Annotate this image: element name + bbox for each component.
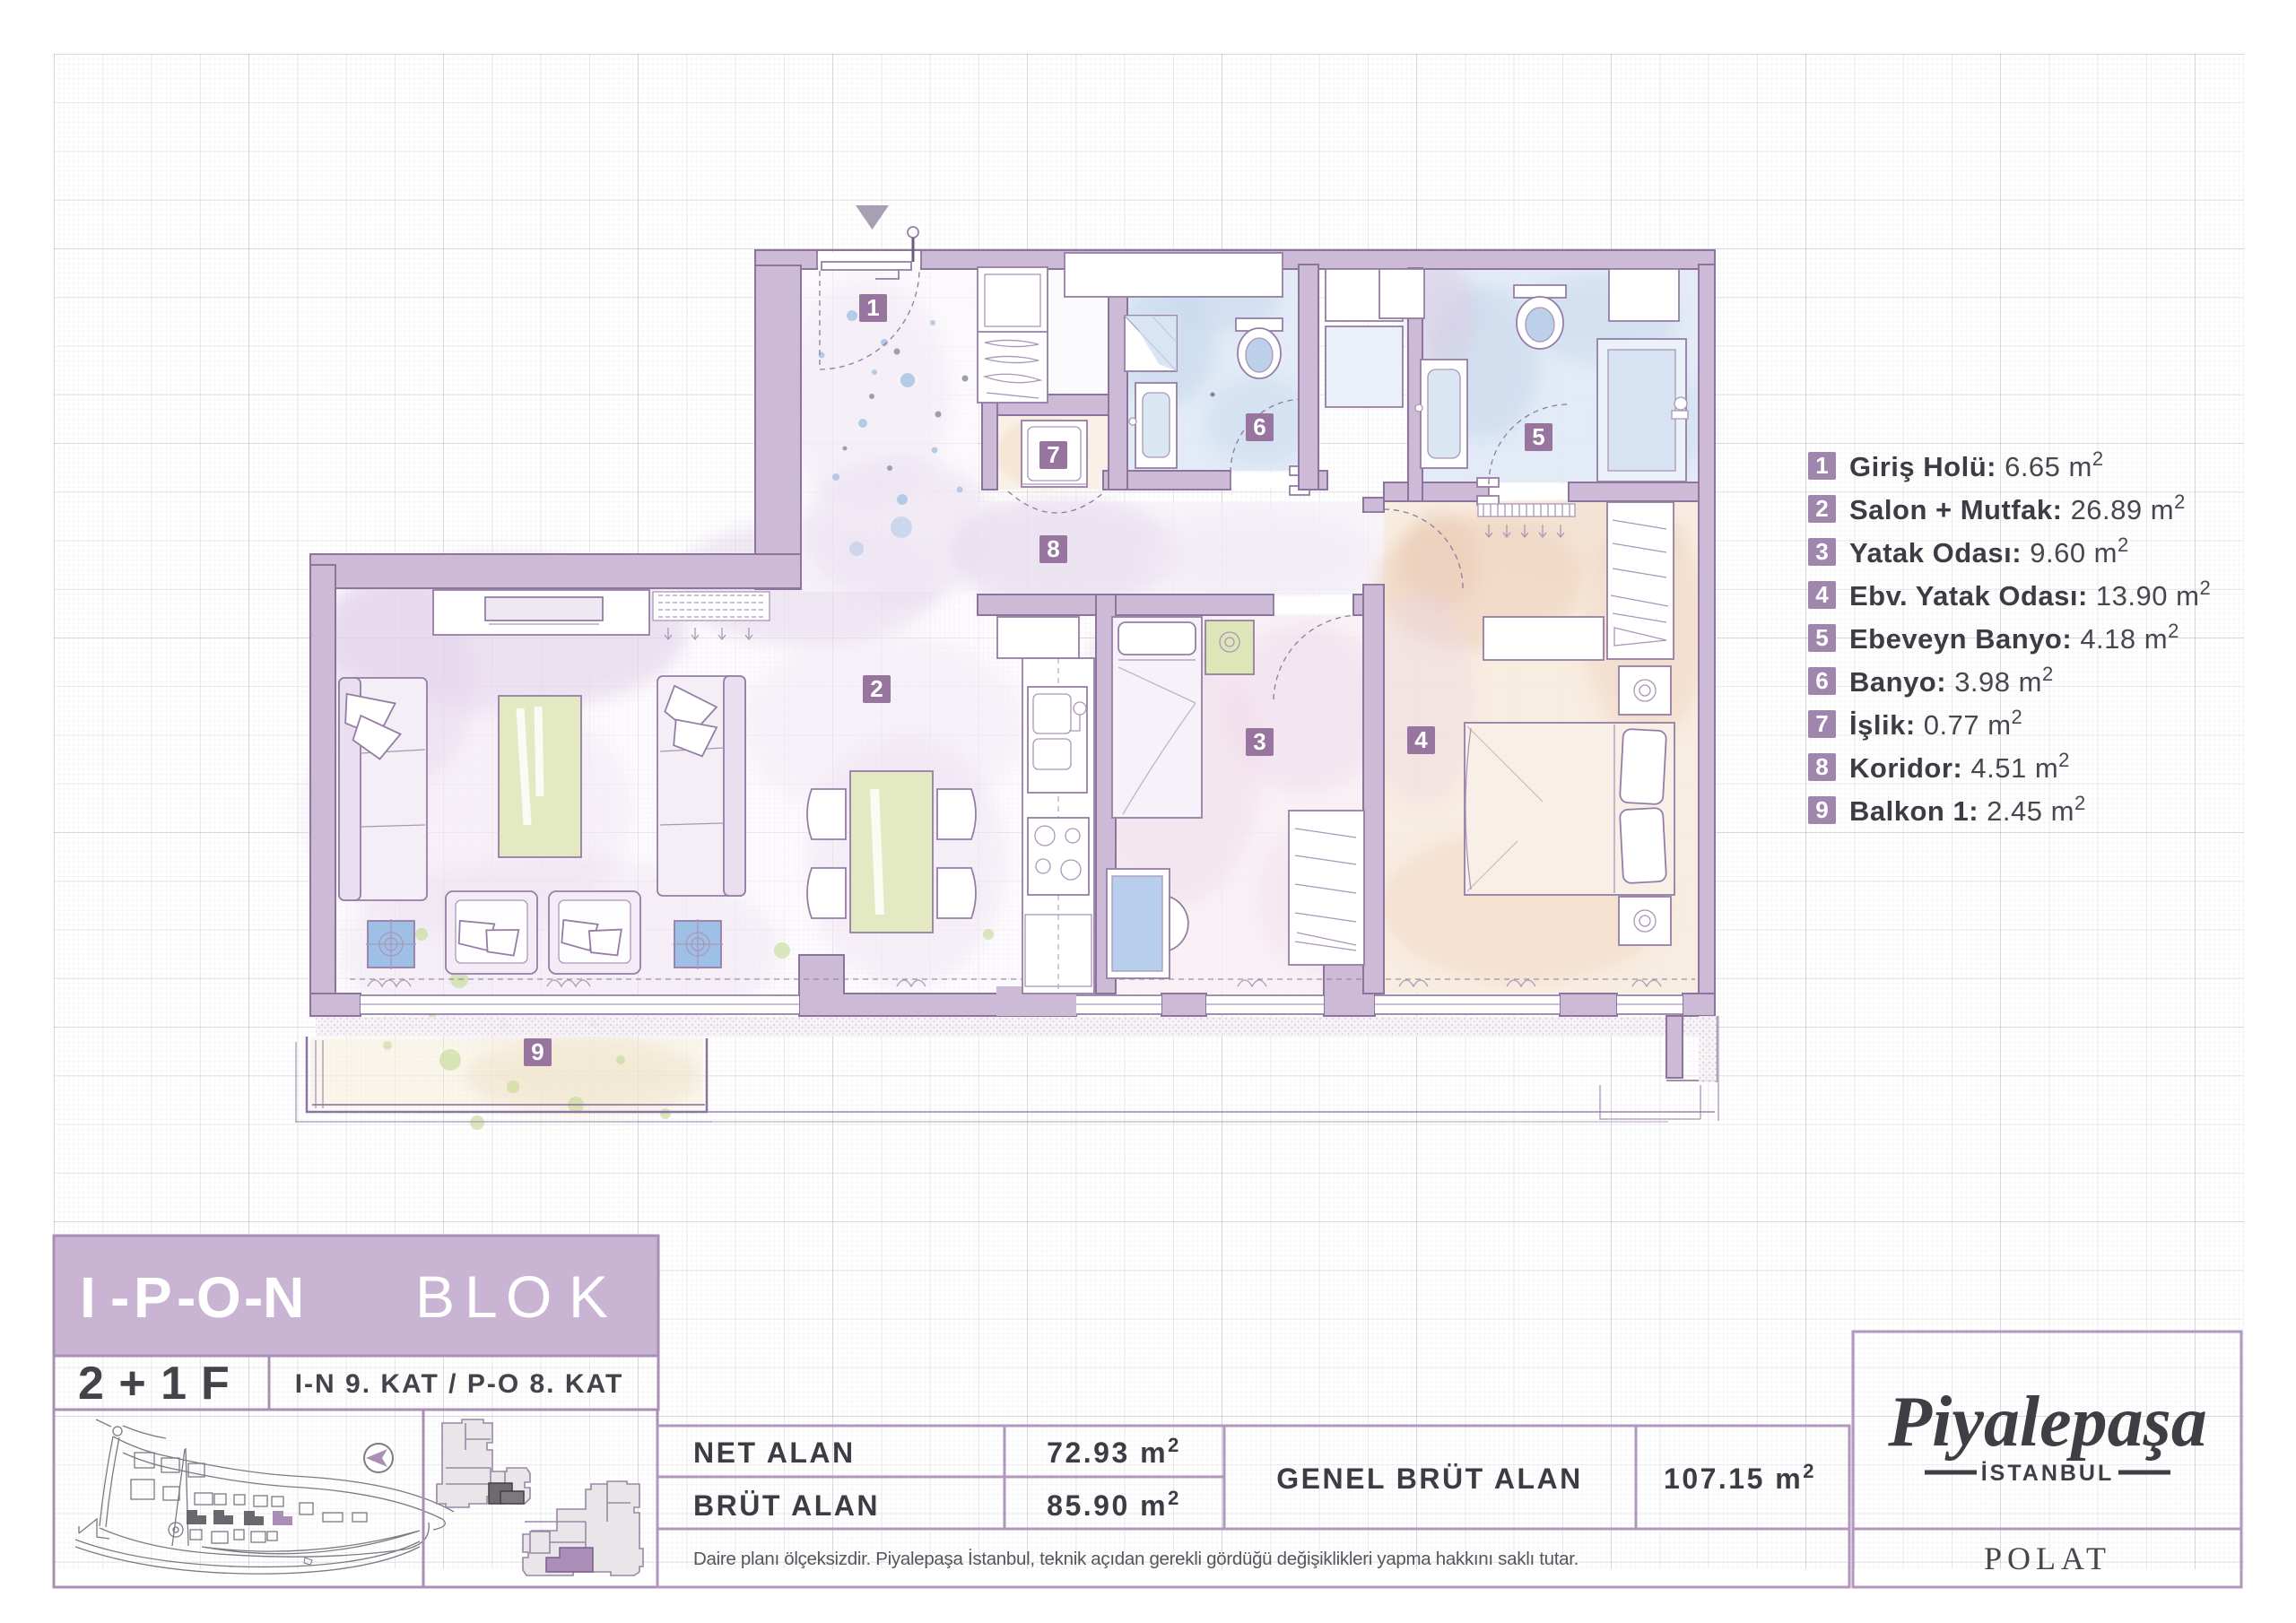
svg-text:NET ALAN: NET ALAN <box>693 1436 856 1469</box>
svg-text:6: 6 <box>1253 413 1265 440</box>
svg-text:8: 8 <box>1815 753 1828 780</box>
svg-text:9: 9 <box>531 1038 544 1065</box>
svg-text:Banyo: 3.98 m2: Banyo: 3.98 m2 <box>1849 663 2054 698</box>
svg-text:2: 2 <box>1815 495 1828 522</box>
svg-text:6: 6 <box>1815 667 1828 694</box>
svg-text:N: N <box>263 1265 304 1330</box>
svg-text:1: 1 <box>1815 452 1828 479</box>
svg-text:Koridor: 4.51 m2: Koridor: 4.51 m2 <box>1849 749 2070 784</box>
svg-text:I: I <box>80 1265 96 1330</box>
svg-text:8: 8 <box>1047 535 1059 562</box>
svg-text:3: 3 <box>1815 538 1828 565</box>
svg-text:2: 2 <box>870 675 883 702</box>
svg-text:K: K <box>569 1263 608 1330</box>
svg-text:Salon + Mutfak: 26.89 m2: Salon + Mutfak: 26.89 m2 <box>1849 490 2186 525</box>
svg-text:-: - <box>110 1265 129 1330</box>
svg-text:I-N 9. KAT / P-O 8. KAT: I-N 9. KAT / P-O 8. KAT <box>295 1369 624 1399</box>
svg-text:4: 4 <box>1815 581 1829 608</box>
svg-text:Ebv. Yatak Odası: 13.90 m2: Ebv. Yatak Odası: 13.90 m2 <box>1849 577 2211 612</box>
svg-text:BRÜT ALAN: BRÜT ALAN <box>693 1489 880 1522</box>
svg-text:İşlik: 0.77 m2: İşlik: 0.77 m2 <box>1849 706 2022 741</box>
svg-text:F: F <box>201 1358 230 1410</box>
svg-text:B: B <box>415 1263 455 1330</box>
svg-text:-: - <box>244 1265 263 1330</box>
svg-text:İSTANBUL: İSTANBUL <box>1981 1461 2115 1486</box>
svg-text:7: 7 <box>1815 710 1828 737</box>
svg-text:5: 5 <box>1815 624 1828 651</box>
svg-text:9: 9 <box>1815 796 1828 823</box>
svg-text:GENEL BRÜT ALAN: GENEL BRÜT ALAN <box>1276 1462 1583 1495</box>
svg-text:Balkon 1: 2.45 m2: Balkon 1: 2.45 m2 <box>1849 792 2086 827</box>
svg-text:L: L <box>465 1263 498 1330</box>
svg-text:Daire planı ölçeksizdir. Piyal: Daire planı ölçeksizdir. Piyalepaşa İsta… <box>693 1549 1578 1569</box>
svg-text:3: 3 <box>1253 728 1265 755</box>
svg-text:1: 1 <box>866 294 879 321</box>
svg-text:O: O <box>506 1263 552 1330</box>
svg-text:Yatak Odası: 9.60 m2: Yatak Odası: 9.60 m2 <box>1849 534 2129 568</box>
svg-text:Giriş Holü: 6.65 m2: Giriş Holü: 6.65 m2 <box>1849 447 2104 482</box>
svg-text:POLAT: POLAT <box>1984 1541 2111 1576</box>
svg-text:7: 7 <box>1047 441 1059 468</box>
svg-text:85.90 m2: 85.90 m2 <box>1047 1487 1181 1522</box>
svg-text:2 + 1: 2 + 1 <box>78 1358 187 1410</box>
svg-text:72.93 m2: 72.93 m2 <box>1047 1434 1181 1469</box>
svg-text:-: - <box>177 1265 196 1330</box>
svg-text:Ebeveyn Banyo: 4.18 m2: Ebeveyn Banyo: 4.18 m2 <box>1849 620 2179 655</box>
svg-text:4: 4 <box>1414 726 1428 753</box>
svg-text:O: O <box>196 1265 241 1330</box>
svg-text:Piyalepaşa: Piyalepaşa <box>1887 1383 2206 1462</box>
svg-text:5: 5 <box>1532 423 1544 450</box>
svg-text:P: P <box>134 1265 172 1330</box>
svg-text:107.15 m2: 107.15 m2 <box>1664 1460 1816 1495</box>
